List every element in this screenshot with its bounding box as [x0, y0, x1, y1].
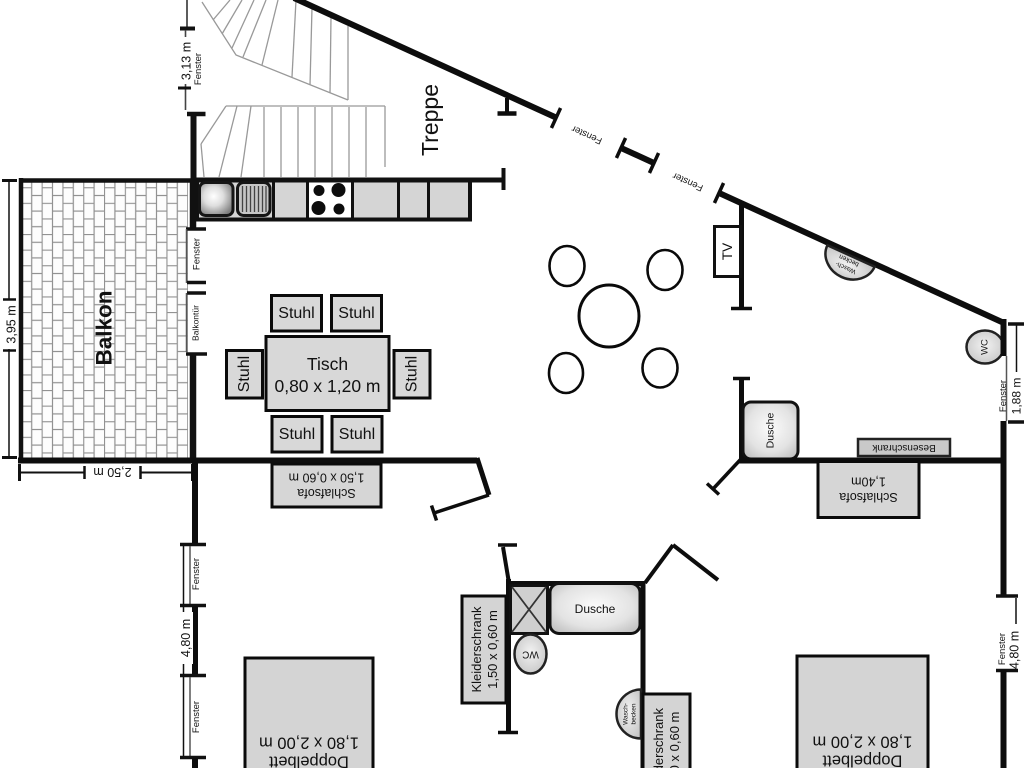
svg-text:Fenster: Fenster: [191, 701, 202, 733]
svg-text:Kleiderschrank: Kleiderschrank: [651, 708, 666, 768]
svg-text:Dusche: Dusche: [575, 602, 616, 616]
svg-text:Tisch: Tisch: [307, 354, 348, 374]
svg-text:Doppelbett: Doppelbett: [269, 753, 349, 768]
svg-text:Balkontür: Balkontür: [191, 305, 201, 341]
svg-text:1,80 x 2,00 m: 1,80 x 2,00 m: [259, 734, 359, 752]
svg-text:4,80 m: 4,80 m: [179, 619, 193, 657]
svg-text:Fenster: Fenster: [192, 238, 203, 270]
svg-text:Besenschrank: Besenschrank: [871, 442, 935, 453]
svg-text:Schlafsofa: Schlafsofa: [839, 490, 897, 504]
svg-text:3,95 m: 3,95 m: [5, 305, 19, 343]
svg-text:3,13 m: 3,13 m: [180, 42, 194, 80]
svg-text:1,50 x 0,60 m: 1,50 x 0,60 m: [289, 471, 365, 485]
svg-text:Fenster: Fenster: [193, 53, 204, 85]
svg-text:Wasch-: Wasch-: [623, 703, 630, 725]
svg-text:Stuhl: Stuhl: [236, 356, 253, 392]
svg-text:Kleiderschrank: Kleiderschrank: [469, 606, 484, 692]
svg-text:Balkon: Balkon: [92, 290, 117, 365]
svg-text:TV: TV: [720, 243, 735, 260]
svg-text:4,80 m: 4,80 m: [1008, 631, 1022, 669]
svg-text:2,50 m: 2,50 m: [93, 465, 131, 479]
svg-text:0,80 x 1,20 m: 0,80 x 1,20 m: [274, 376, 380, 396]
svg-text:Fenster: Fenster: [191, 558, 202, 590]
svg-text:1,50 x 0,60 m: 1,50 x 0,60 m: [667, 712, 682, 768]
svg-text:1,80 x 2,00 m: 1,80 x 2,00 m: [813, 733, 913, 751]
svg-text:Fenster: Fenster: [997, 633, 1008, 665]
svg-text:Treppe: Treppe: [417, 84, 443, 156]
svg-text:Fenster: Fenster: [998, 380, 1009, 412]
svg-text:Stuhl: Stuhl: [339, 426, 375, 443]
svg-text:Doppelbett: Doppelbett: [822, 752, 902, 768]
svg-text:WC: WC: [980, 339, 991, 355]
svg-text:Dusche: Dusche: [765, 413, 777, 449]
svg-text:Stuhl: Stuhl: [279, 426, 315, 443]
svg-text:becken: becken: [631, 703, 638, 724]
svg-text:1,50 x 0,60 m: 1,50 x 0,60 m: [485, 610, 500, 689]
svg-text:WC: WC: [522, 649, 539, 660]
svg-text:Schlafsofa: Schlafsofa: [297, 486, 355, 500]
svg-text:1,40m: 1,40m: [851, 475, 886, 489]
svg-text:Stuhl: Stuhl: [278, 305, 314, 322]
svg-text:1,88 m: 1,88 m: [1010, 378, 1024, 415]
svg-text:Stuhl: Stuhl: [404, 356, 421, 392]
svg-text:Stuhl: Stuhl: [338, 305, 374, 322]
